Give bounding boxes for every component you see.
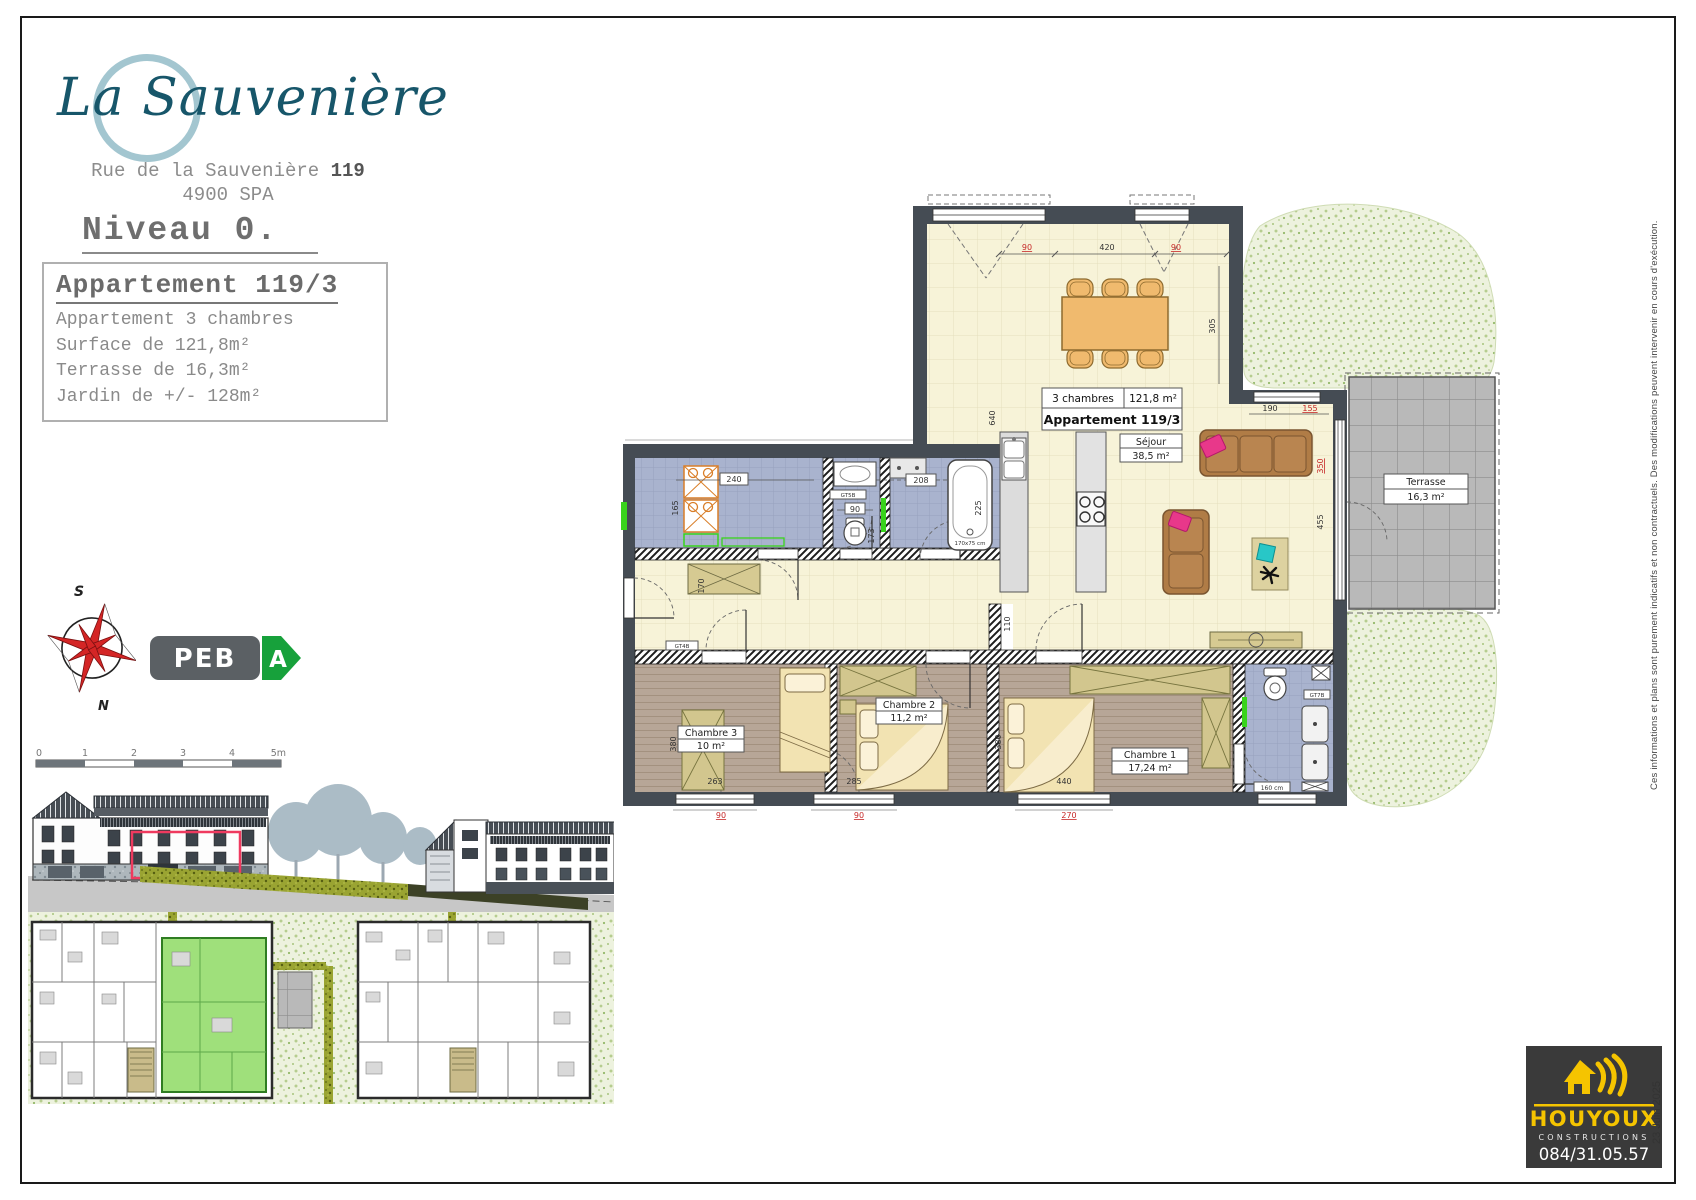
dim-c1-380: 380 — [994, 734, 1003, 749]
dim-wc90: 90 — [850, 505, 860, 514]
dim-173: 173 — [867, 528, 876, 543]
peb-badge: PEB A — [150, 636, 302, 682]
dim-top-90a: 90 — [1022, 243, 1032, 252]
scale-tick: 0 — [36, 748, 42, 759]
chambre3-area: 10 m² — [697, 741, 725, 752]
tree-silhouettes — [268, 784, 437, 884]
scale-tick: 2 — [131, 748, 137, 759]
chambre3-label: Chambre 3 — [685, 728, 737, 739]
compass-north-label: N — [98, 699, 109, 714]
dim-155: 155 — [1302, 404, 1317, 413]
dim-bathtub-size: 170x75 cm — [955, 541, 986, 547]
dim-160: 160 cm — [1261, 785, 1284, 792]
dim-263: 263 — [707, 777, 722, 786]
scale-tick: 3 — [180, 748, 186, 759]
level-title: Niveau 0. — [82, 212, 318, 254]
elevation-drawing — [28, 780, 614, 915]
info-line: Surface de 121,8m² — [56, 334, 374, 360]
dim-270: 270 — [1061, 811, 1076, 820]
apartment-area: 121,8 m² — [1129, 393, 1177, 405]
dim-208: 208 — [913, 476, 928, 485]
peb-grade: A — [269, 647, 287, 673]
sejour-label: Séjour — [1136, 437, 1166, 448]
dim-440: 440 — [1056, 777, 1071, 786]
floor-plan: Terrasse 16,3 m² — [618, 192, 1508, 842]
site-terrace-patch — [278, 972, 312, 1028]
building-b-elevation — [426, 820, 614, 894]
dim-190: 190 — [1262, 404, 1277, 413]
scale-tick: 4 — [229, 748, 235, 759]
site-building-right — [358, 922, 590, 1098]
tag-gt4b: GT4B — [675, 644, 690, 650]
scale-tick: 1 — [82, 748, 88, 759]
chambre1-label: Chambre 1 — [1124, 750, 1176, 761]
dim-420: 420 — [1099, 243, 1114, 252]
compass-star-icon — [46, 591, 136, 705]
houyoux-phone: 084/31.05.57 — [1539, 1145, 1650, 1164]
site-building-left — [32, 922, 272, 1098]
dining-table — [1062, 297, 1168, 350]
scale-tick: 5m — [271, 748, 286, 759]
logo-text: La Sauvenière — [57, 68, 449, 128]
chambre2-label: Chambre 2 — [883, 700, 935, 711]
margin-disclaimer: Ces informations et plans sont purement … — [1649, 190, 1660, 790]
dim-top-90b: 90 — [1171, 243, 1181, 252]
dim-305: 305 — [1208, 318, 1217, 333]
dim-110: 110 — [1003, 616, 1012, 631]
dim-c3-380: 380 — [669, 736, 678, 751]
info-line: Appartement 3 chambres — [56, 308, 374, 334]
address-city: 4900 SPA — [58, 184, 398, 208]
houyoux-name: HOUYOUX — [1530, 1107, 1659, 1131]
dim-170: 170 — [697, 578, 706, 593]
terrasse-label: Terrasse — [1405, 477, 1445, 488]
dim-240: 240 — [726, 475, 741, 484]
apartment-type: 3 chambres — [1052, 393, 1114, 405]
info-line: Jardin de +/- 128m² — [56, 385, 374, 411]
apartment-info-box: Appartement 119/3 Appartement 3 chambres… — [42, 262, 388, 422]
dim-b90b: 90 — [854, 811, 864, 820]
chambre2-area: 11,2 m² — [890, 713, 927, 724]
info-line: Terrasse de 16,3m² — [56, 359, 374, 385]
plan-sheet: La Sauvenière Rue de la Sauvenière 119 4… — [0, 0, 1696, 1200]
dining-set — [1062, 279, 1168, 368]
houyoux-subtitle: CONSTRUCTIONS — [1538, 1133, 1649, 1142]
peb-label: PEB — [174, 644, 237, 674]
dim-285: 285 — [846, 777, 861, 786]
apartment-name: Appartement 119/3 — [1044, 412, 1181, 427]
sejour-area: 38,5 m² — [1132, 451, 1169, 462]
scale-bar: 0 1 2 3 4 5m — [34, 746, 288, 776]
margin-date: 23 Juin 2025 — [1651, 1064, 1663, 1144]
project-logo: La Sauvenière — [55, 58, 395, 158]
apartment-title: Appartement 119/3 — [56, 270, 338, 304]
address-number: 119 — [331, 160, 365, 182]
project-address: Rue de la Sauvenière 119 4900 SPA — [58, 160, 398, 208]
dim-350: 350 — [1316, 458, 1325, 473]
compass-south-label: S — [74, 584, 84, 600]
terrasse-area: 16,3 m² — [1407, 492, 1444, 503]
dim-455: 455 — [1316, 514, 1325, 529]
chambre1-area: 17,24 m² — [1128, 763, 1171, 774]
tag-gt5b: GT5B — [841, 493, 856, 499]
houyoux-logo: HOUYOUX CONSTRUCTIONS 084/31.05.57 — [1526, 1046, 1662, 1168]
dim-225: 225 — [974, 500, 983, 515]
compass-rose: S N — [46, 580, 136, 714]
dim-b90a: 90 — [716, 811, 726, 820]
site-plan — [28, 912, 614, 1104]
address-street: Rue de la Sauvenière — [91, 160, 330, 182]
terrace: Terrasse 16,3 m² — [1345, 373, 1499, 613]
dim-165: 165 — [671, 500, 680, 515]
dim-640: 640 — [988, 410, 997, 425]
tag-gt7b: GT7B — [1310, 693, 1325, 699]
